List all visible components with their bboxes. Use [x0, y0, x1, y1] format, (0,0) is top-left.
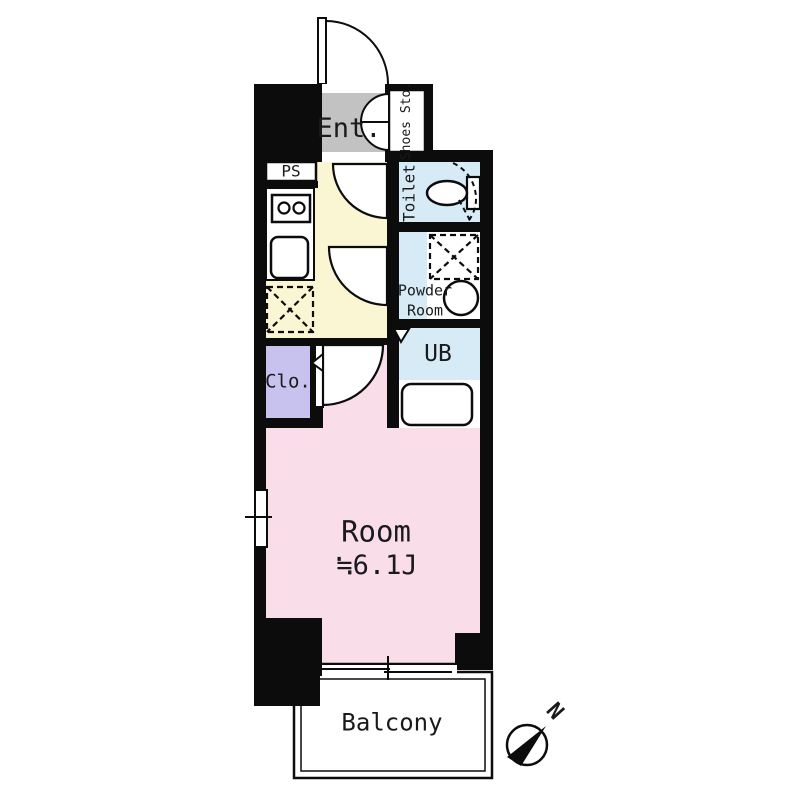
entrance-threshold-inner	[322, 152, 385, 162]
room-window-left	[245, 490, 272, 547]
closet-label: Clo.	[265, 371, 311, 394]
floor-plan: Ent. Shoes Sto. PS Toilet Powder Room UB…	[0, 0, 800, 800]
wall-bottom-left-block	[254, 618, 320, 706]
powder-room-label: Powder Room	[398, 282, 452, 321]
toilet-tank	[467, 177, 480, 209]
stove-burner-left	[279, 203, 290, 214]
entrance-label: Ent.	[316, 113, 381, 145]
stove-burner-right	[294, 203, 305, 214]
balcony-label: Balcony	[341, 709, 442, 738]
toilet-label: Toilet	[399, 164, 418, 222]
wall-under-ps	[266, 181, 318, 188]
main-room-area: ≒6.1J	[336, 550, 417, 582]
unit-bath-label: UB	[424, 341, 452, 369]
entrance-threshold-outer	[322, 84, 385, 93]
pipe-space-label: PS	[281, 161, 300, 180]
compass-icon	[507, 725, 547, 766]
entry-door-swing	[318, 18, 388, 84]
bathtub	[402, 384, 472, 425]
shoes-storage-label: Shoes Sto.	[399, 82, 415, 160]
stove	[272, 195, 310, 222]
entry-door-leaf	[318, 18, 326, 84]
main-room-label: Room	[341, 515, 411, 550]
kitchen-sink	[271, 237, 308, 278]
toilet-bowl	[427, 181, 467, 205]
